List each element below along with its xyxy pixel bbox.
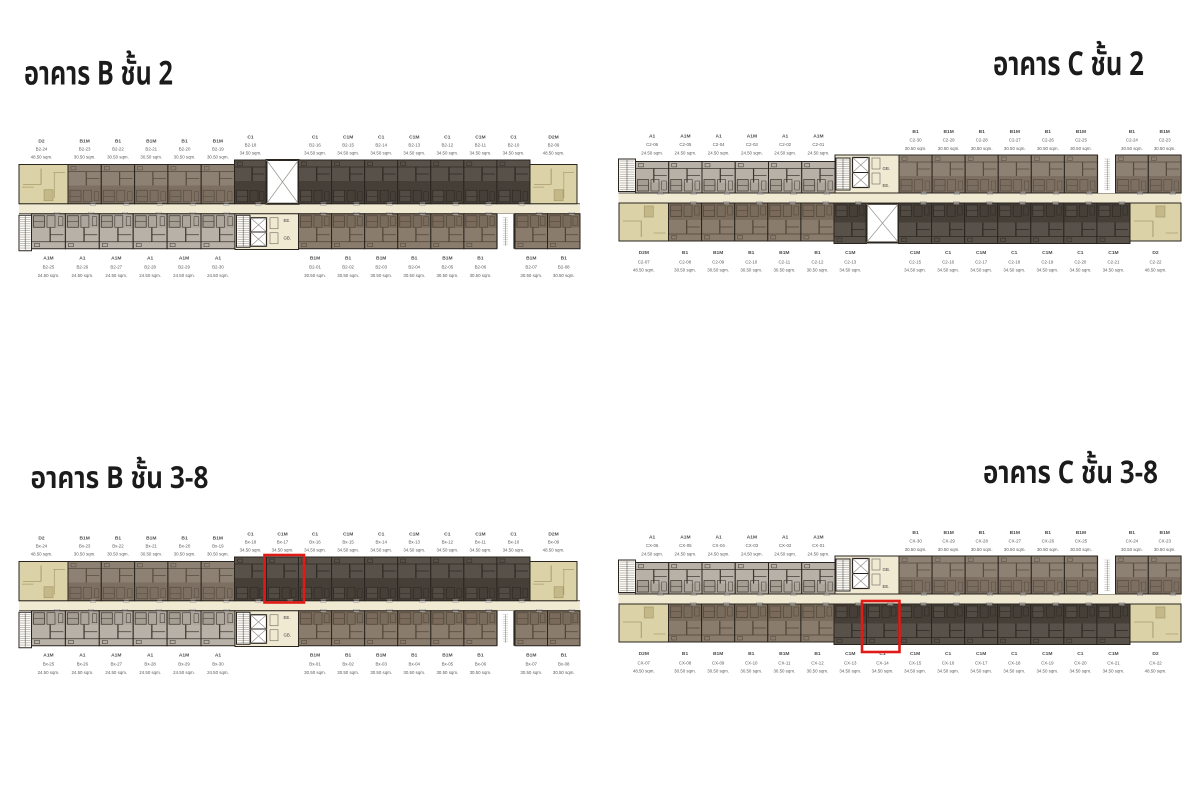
svg-text:C1: C1 bbox=[247, 531, 254, 537]
svg-text:B1: B1 bbox=[345, 255, 352, 261]
svg-text:CX-20: CX-20 bbox=[1074, 660, 1087, 665]
svg-text:CX-25: CX-25 bbox=[1075, 538, 1088, 543]
svg-text:48.50 sqm.: 48.50 sqm. bbox=[633, 268, 655, 273]
svg-text:B1M: B1M bbox=[526, 652, 536, 658]
svg-text:Bx-23: Bx-23 bbox=[79, 544, 91, 549]
svg-text:34.50 sqm.: 34.50 sqm. bbox=[872, 669, 894, 674]
svg-text:GB.: GB. bbox=[284, 632, 292, 637]
svg-text:48.50 sqm.: 48.50 sqm. bbox=[1145, 669, 1167, 674]
svg-text:30.50 sqm.: 30.50 sqm. bbox=[938, 146, 960, 151]
svg-text:B2-19: B2-19 bbox=[212, 147, 224, 152]
svg-text:30.50 sqm.: 30.50 sqm. bbox=[1121, 547, 1143, 552]
svg-text:C2-21: C2-21 bbox=[1107, 259, 1120, 264]
svg-text:A1: A1 bbox=[215, 652, 222, 658]
svg-text:B2-24: B2-24 bbox=[36, 147, 48, 152]
svg-text:C1: C1 bbox=[945, 651, 952, 657]
svg-text:Bx-05: Bx-05 bbox=[442, 662, 454, 667]
svg-text:C2-13: C2-13 bbox=[844, 259, 857, 264]
svg-text:30.50 sqm.: 30.50 sqm. bbox=[74, 154, 96, 159]
svg-text:CX-18: CX-18 bbox=[1008, 660, 1021, 665]
svg-text:B1M: B1M bbox=[1010, 129, 1020, 135]
svg-text:C1M: C1M bbox=[845, 250, 855, 256]
svg-text:48.50 sqm.: 48.50 sqm. bbox=[543, 547, 565, 552]
svg-text:B1: B1 bbox=[682, 250, 689, 256]
svg-text:34.50 sqm.: 34.50 sqm. bbox=[240, 547, 262, 552]
svg-text:C2-07: C2-07 bbox=[638, 259, 651, 264]
svg-text:30.50 sqm.: 30.50 sqm. bbox=[520, 273, 542, 278]
svg-text:B1: B1 bbox=[115, 535, 122, 541]
svg-text:30.50 sqm.: 30.50 sqm. bbox=[370, 670, 392, 675]
svg-text:30.50 sqm.: 30.50 sqm. bbox=[1004, 547, 1026, 552]
svg-text:B1M: B1M bbox=[146, 535, 156, 541]
svg-text:D2M: D2M bbox=[639, 250, 649, 256]
svg-text:30.50 sqm.: 30.50 sqm. bbox=[470, 670, 492, 675]
svg-text:CX-24: CX-24 bbox=[1126, 538, 1139, 543]
svg-text:C1: C1 bbox=[510, 531, 517, 537]
svg-text:B1M: B1M bbox=[442, 652, 452, 658]
svg-text:B1M: B1M bbox=[146, 138, 156, 144]
svg-text:B1M: B1M bbox=[79, 535, 89, 541]
svg-text:34.50 sqm.: 34.50 sqm. bbox=[1070, 268, 1092, 273]
svg-text:A1M: A1M bbox=[747, 534, 757, 540]
svg-text:B1: B1 bbox=[561, 255, 568, 261]
svg-text:B1: B1 bbox=[411, 255, 418, 261]
svg-text:C1M: C1M bbox=[976, 250, 986, 256]
svg-text:34.50 sqm.: 34.50 sqm. bbox=[470, 150, 492, 155]
svg-text:C1: C1 bbox=[1011, 250, 1018, 256]
svg-text:Bx-22: Bx-22 bbox=[112, 544, 124, 549]
svg-text:B1M: B1M bbox=[213, 535, 223, 541]
svg-text:24.50 sqm.: 24.50 sqm. bbox=[774, 552, 796, 557]
svg-text:C1M: C1M bbox=[1108, 250, 1118, 256]
svg-text:B2-04: B2-04 bbox=[408, 265, 420, 270]
svg-text:Bx-24: Bx-24 bbox=[36, 544, 48, 549]
svg-text:GB.: GB. bbox=[883, 166, 891, 171]
svg-text:C2-04: C2-04 bbox=[713, 142, 726, 147]
svg-text:C2-19: C2-19 bbox=[1041, 259, 1054, 264]
svg-text:B1: B1 bbox=[181, 138, 188, 144]
svg-text:34.50 sqm.: 34.50 sqm. bbox=[839, 669, 861, 674]
svg-text:30.50 sqm.: 30.50 sqm. bbox=[674, 669, 696, 674]
svg-text:30.50 sqm.: 30.50 sqm. bbox=[1037, 146, 1059, 151]
svg-text:34.50 sqm.: 34.50 sqm. bbox=[470, 547, 492, 552]
svg-text:D2: D2 bbox=[38, 138, 45, 144]
svg-text:B2-16: B2-16 bbox=[309, 143, 321, 148]
svg-text:30.50 sqm.: 30.50 sqm. bbox=[107, 551, 129, 556]
svg-text:C2-26: C2-26 bbox=[1042, 137, 1055, 142]
svg-text:30.50 sqm.: 30.50 sqm. bbox=[674, 268, 696, 273]
svg-text:CX-22: CX-22 bbox=[1149, 660, 1162, 665]
svg-text:A1M: A1M bbox=[179, 255, 189, 261]
svg-text:Bx-20: Bx-20 bbox=[179, 544, 191, 549]
svg-text:C2-24: C2-24 bbox=[1126, 137, 1139, 142]
svg-text:30.50 sqm.: 30.50 sqm. bbox=[707, 268, 729, 273]
svg-text:A1M: A1M bbox=[111, 652, 121, 658]
svg-text:C1M: C1M bbox=[845, 651, 855, 657]
svg-text:34.50 sqm.: 34.50 sqm. bbox=[970, 268, 992, 273]
svg-text:CX-19: CX-19 bbox=[1041, 660, 1054, 665]
svg-text:B2-28: B2-28 bbox=[144, 265, 156, 270]
svg-text:34.50 sqm.: 34.50 sqm. bbox=[904, 669, 926, 674]
svg-text:CX-29: CX-29 bbox=[942, 538, 955, 543]
svg-text:B1: B1 bbox=[682, 651, 689, 657]
svg-text:B1M: B1M bbox=[779, 250, 789, 256]
svg-text:B1M: B1M bbox=[213, 138, 223, 144]
svg-text:30.50 sqm.: 30.50 sqm. bbox=[773, 268, 795, 273]
svg-text:C1M: C1M bbox=[1108, 651, 1118, 657]
svg-text:B1M: B1M bbox=[310, 255, 320, 261]
svg-text:B1: B1 bbox=[181, 535, 188, 541]
svg-text:CX-16: CX-16 bbox=[942, 660, 955, 665]
svg-text:34.50 sqm.: 34.50 sqm. bbox=[839, 268, 861, 273]
svg-text:C1: C1 bbox=[312, 531, 319, 537]
svg-text:Bx-09: Bx-09 bbox=[548, 540, 560, 545]
svg-text:CX-26: CX-26 bbox=[1042, 538, 1055, 543]
svg-text:B2-11: B2-11 bbox=[475, 143, 487, 148]
svg-text:A1: A1 bbox=[147, 652, 154, 658]
svg-text:B1M: B1M bbox=[1076, 530, 1086, 536]
svg-text:CX-09: CX-09 bbox=[712, 660, 725, 665]
svg-text:B2-09: B2-09 bbox=[548, 143, 560, 148]
svg-text:24.50 sqm.: 24.50 sqm. bbox=[71, 273, 93, 278]
svg-text:C2-05: C2-05 bbox=[679, 142, 692, 147]
svg-text:30.50 sqm.: 30.50 sqm. bbox=[905, 547, 927, 552]
svg-text:B2-30: B2-30 bbox=[212, 265, 224, 270]
svg-text:C2-03: C2-03 bbox=[746, 142, 759, 147]
svg-text:C2-18: C2-18 bbox=[1008, 259, 1021, 264]
svg-text:34.50 sqm.: 34.50 sqm. bbox=[1003, 268, 1025, 273]
svg-text:30.50 sqm.: 30.50 sqm. bbox=[207, 154, 229, 159]
svg-text:C2-09: C2-09 bbox=[712, 259, 725, 264]
svg-text:Bx-26: Bx-26 bbox=[77, 662, 89, 667]
svg-text:Bx-19: Bx-19 bbox=[212, 544, 224, 549]
svg-text:30.50 sqm.: 30.50 sqm. bbox=[1037, 547, 1059, 552]
svg-text:24.50 sqm.: 24.50 sqm. bbox=[173, 273, 195, 278]
svg-text:A1: A1 bbox=[782, 534, 789, 540]
svg-text:C2-23: C2-23 bbox=[1159, 137, 1172, 142]
svg-text:34.50 sqm.: 34.50 sqm. bbox=[503, 150, 525, 155]
svg-text:30.50 sqm.: 30.50 sqm. bbox=[107, 154, 129, 159]
svg-text:Bx-08: Bx-08 bbox=[558, 662, 570, 667]
svg-text:34.50 sqm.: 34.50 sqm. bbox=[937, 669, 959, 674]
svg-text:34.50 sqm.: 34.50 sqm. bbox=[1070, 669, 1092, 674]
svg-text:24.50 sqm.: 24.50 sqm. bbox=[675, 151, 697, 156]
svg-text:GB.: GB. bbox=[284, 235, 292, 240]
svg-text:34.50 sqm.: 34.50 sqm. bbox=[503, 547, 525, 552]
svg-text:B2-18: B2-18 bbox=[245, 143, 257, 148]
svg-text:Bx-27: Bx-27 bbox=[111, 662, 123, 667]
svg-text:B1: B1 bbox=[1129, 530, 1136, 536]
svg-text:B1M: B1M bbox=[779, 651, 789, 657]
svg-text:B1: B1 bbox=[979, 129, 986, 135]
svg-text:A1M: A1M bbox=[111, 255, 121, 261]
svg-text:48.50 sqm.: 48.50 sqm. bbox=[543, 150, 565, 155]
svg-text:D2M: D2M bbox=[548, 134, 558, 140]
svg-text:48.50 sqm.: 48.50 sqm. bbox=[633, 669, 655, 674]
svg-text:30.50 sqm.: 30.50 sqm. bbox=[740, 669, 762, 674]
svg-text:A1M: A1M bbox=[179, 652, 189, 658]
svg-text:C2-16: C2-16 bbox=[942, 259, 955, 264]
svg-text:24.50 sqm.: 24.50 sqm. bbox=[774, 151, 796, 156]
svg-text:B1M: B1M bbox=[1010, 530, 1020, 536]
svg-text:C1M: C1M bbox=[1042, 651, 1052, 657]
svg-text:30.50 sqm.: 30.50 sqm. bbox=[807, 669, 829, 674]
svg-text:B2-12: B2-12 bbox=[441, 143, 453, 148]
svg-text:C1: C1 bbox=[1077, 651, 1084, 657]
svg-text:30.50 sqm.: 30.50 sqm. bbox=[1004, 146, 1026, 151]
svg-text:B2-05: B2-05 bbox=[442, 265, 454, 270]
svg-text:C1M: C1M bbox=[1042, 250, 1052, 256]
svg-text:24.50 sqm.: 24.50 sqm. bbox=[641, 552, 663, 557]
svg-text:C2-08: C2-08 bbox=[679, 259, 692, 264]
svg-text:30.50 sqm.: 30.50 sqm. bbox=[174, 154, 196, 159]
svg-text:EE.: EE. bbox=[883, 183, 890, 188]
svg-text:CX-03: CX-03 bbox=[746, 543, 759, 548]
svg-text:B2-22: B2-22 bbox=[112, 147, 124, 152]
svg-text:Bx-13: Bx-13 bbox=[409, 540, 421, 545]
svg-text:CX-17: CX-17 bbox=[975, 660, 988, 665]
svg-text:B2-21: B2-21 bbox=[145, 147, 157, 152]
svg-text:34.50 sqm.: 34.50 sqm. bbox=[370, 547, 392, 552]
svg-text:GB.: GB. bbox=[883, 567, 891, 572]
svg-text:34.50 sqm.: 34.50 sqm. bbox=[272, 547, 294, 552]
svg-text:24.50 sqm.: 24.50 sqm. bbox=[741, 552, 763, 557]
svg-text:Bx-10: Bx-10 bbox=[508, 540, 520, 545]
svg-text:24.50 sqm.: 24.50 sqm. bbox=[38, 670, 60, 675]
svg-text:34.50 sqm.: 34.50 sqm. bbox=[1003, 669, 1025, 674]
svg-text:C1: C1 bbox=[444, 134, 451, 140]
svg-text:A1: A1 bbox=[715, 133, 722, 139]
svg-text:B1M: B1M bbox=[1160, 129, 1170, 135]
svg-text:30.50 sqm.: 30.50 sqm. bbox=[140, 154, 162, 159]
svg-text:C1: C1 bbox=[312, 134, 319, 140]
svg-text:C1M: C1M bbox=[409, 134, 419, 140]
svg-text:A1: A1 bbox=[782, 133, 789, 139]
svg-text:34.50 sqm.: 34.50 sqm. bbox=[1103, 669, 1125, 674]
svg-text:C2-15: C2-15 bbox=[909, 259, 922, 264]
svg-text:D2: D2 bbox=[1152, 651, 1159, 657]
svg-text:B1: B1 bbox=[748, 651, 755, 657]
svg-text:30.50 sqm.: 30.50 sqm. bbox=[74, 551, 96, 556]
svg-text:B1M: B1M bbox=[376, 255, 386, 261]
svg-text:C1M: C1M bbox=[409, 531, 419, 537]
svg-text:C2-12: C2-12 bbox=[811, 259, 824, 264]
svg-text:B1M: B1M bbox=[442, 255, 452, 261]
svg-text:CX-13: CX-13 bbox=[844, 660, 857, 665]
svg-text:30.50 sqm.: 30.50 sqm. bbox=[174, 551, 196, 556]
svg-text:Bx-15: Bx-15 bbox=[342, 540, 354, 545]
svg-text:Bx-04: Bx-04 bbox=[409, 662, 421, 667]
svg-text:B1: B1 bbox=[814, 250, 821, 256]
svg-text:34.50 sqm.: 34.50 sqm. bbox=[370, 150, 392, 155]
svg-text:Bx-21: Bx-21 bbox=[146, 544, 158, 549]
svg-text:C2-11: C2-11 bbox=[779, 259, 791, 264]
svg-text:34.50 sqm.: 34.50 sqm. bbox=[436, 150, 458, 155]
svg-text:30.50 sqm.: 30.50 sqm. bbox=[403, 273, 425, 278]
svg-text:CX-10: CX-10 bbox=[745, 660, 758, 665]
svg-text:34.50 sqm.: 34.50 sqm. bbox=[240, 150, 262, 155]
svg-text:B1M: B1M bbox=[310, 652, 320, 658]
svg-text:EE.: EE. bbox=[883, 584, 890, 589]
svg-text:B2-02: B2-02 bbox=[342, 265, 354, 270]
svg-text:30.50 sqm.: 30.50 sqm. bbox=[807, 268, 829, 273]
svg-text:30.50 sqm.: 30.50 sqm. bbox=[971, 547, 993, 552]
svg-text:B2-27: B2-27 bbox=[110, 265, 122, 270]
svg-text:24.50 sqm.: 24.50 sqm. bbox=[139, 273, 161, 278]
svg-text:A1: A1 bbox=[649, 534, 656, 540]
svg-text:A1: A1 bbox=[649, 133, 656, 139]
svg-text:34.50 sqm.: 34.50 sqm. bbox=[970, 669, 992, 674]
svg-text:B1: B1 bbox=[477, 255, 484, 261]
svg-text:B2-23: B2-23 bbox=[79, 147, 91, 152]
svg-text:24.50 sqm.: 24.50 sqm. bbox=[38, 273, 60, 278]
svg-text:Bx-01: Bx-01 bbox=[309, 662, 321, 667]
svg-text:24.50 sqm.: 24.50 sqm. bbox=[641, 151, 663, 156]
svg-text:30.50 sqm.: 30.50 sqm. bbox=[520, 670, 542, 675]
svg-text:C1: C1 bbox=[1011, 651, 1018, 657]
svg-text:B1: B1 bbox=[979, 530, 986, 536]
svg-text:B1: B1 bbox=[115, 138, 122, 144]
svg-text:D2M: D2M bbox=[548, 531, 558, 537]
svg-text:CX-06: CX-06 bbox=[646, 543, 659, 548]
svg-text:30.50 sqm.: 30.50 sqm. bbox=[1154, 547, 1176, 552]
svg-text:C2-02: C2-02 bbox=[779, 142, 792, 147]
svg-text:CX-28: CX-28 bbox=[975, 538, 988, 543]
svg-text:C1: C1 bbox=[510, 134, 517, 140]
svg-text:C1M: C1M bbox=[475, 134, 485, 140]
svg-text:C2-17: C2-17 bbox=[975, 259, 988, 264]
svg-text:EE.: EE. bbox=[284, 218, 291, 223]
svg-text:B1M: B1M bbox=[713, 250, 723, 256]
svg-text:30.50 sqm.: 30.50 sqm. bbox=[1070, 146, 1092, 151]
svg-text:B1M: B1M bbox=[376, 652, 386, 658]
svg-text:48.50 sqm.: 48.50 sqm. bbox=[1145, 268, 1167, 273]
svg-text:30.50 sqm.: 30.50 sqm. bbox=[740, 268, 762, 273]
svg-text:C1M: C1M bbox=[475, 531, 485, 537]
svg-text:24.50 sqm.: 24.50 sqm. bbox=[71, 670, 93, 675]
svg-text:C1: C1 bbox=[444, 531, 451, 537]
svg-text:34.50 sqm.: 34.50 sqm. bbox=[436, 547, 458, 552]
svg-text:C2-27: C2-27 bbox=[1009, 137, 1022, 142]
svg-text:CX-21: CX-21 bbox=[1107, 660, 1120, 665]
svg-text:30.50 sqm.: 30.50 sqm. bbox=[470, 273, 492, 278]
svg-text:C1M: C1M bbox=[910, 651, 920, 657]
svg-text:B1: B1 bbox=[912, 129, 919, 135]
svg-text:C1M: C1M bbox=[343, 134, 353, 140]
svg-text:B1M: B1M bbox=[1160, 530, 1170, 536]
svg-text:C2-29: C2-29 bbox=[943, 137, 956, 142]
svg-text:B2-25: B2-25 bbox=[43, 265, 55, 270]
svg-text:34.50 sqm.: 34.50 sqm. bbox=[1036, 669, 1058, 674]
svg-text:B1: B1 bbox=[477, 652, 484, 658]
svg-text:CX-11: CX-11 bbox=[778, 660, 791, 665]
svg-text:C2-30: C2-30 bbox=[910, 137, 923, 142]
svg-text:Bx-17: Bx-17 bbox=[277, 540, 289, 545]
svg-text:B1: B1 bbox=[561, 652, 568, 658]
svg-text:CX-01: CX-01 bbox=[812, 543, 825, 548]
svg-text:D2: D2 bbox=[1152, 250, 1159, 256]
svg-text:C2-22: C2-22 bbox=[1150, 259, 1163, 264]
svg-text:B1: B1 bbox=[1129, 129, 1136, 135]
svg-text:24.50 sqm.: 24.50 sqm. bbox=[105, 670, 127, 675]
svg-text:Bx-29: Bx-29 bbox=[178, 662, 190, 667]
svg-text:Bx-12: Bx-12 bbox=[442, 540, 454, 545]
svg-text:30.50 sqm.: 30.50 sqm. bbox=[436, 273, 458, 278]
svg-text:Bx-30: Bx-30 bbox=[212, 662, 224, 667]
svg-text:EE.: EE. bbox=[284, 615, 291, 620]
svg-text:C1: C1 bbox=[247, 134, 254, 140]
svg-text:B2-06: B2-06 bbox=[475, 265, 487, 270]
svg-text:34.50 sqm.: 34.50 sqm. bbox=[937, 268, 959, 273]
svg-text:Bx-18: Bx-18 bbox=[245, 540, 257, 545]
svg-text:34.50 sqm.: 34.50 sqm. bbox=[1103, 268, 1125, 273]
svg-text:30.50 sqm.: 30.50 sqm. bbox=[403, 670, 425, 675]
svg-text:C1M: C1M bbox=[277, 531, 287, 537]
svg-text:B2-03: B2-03 bbox=[375, 265, 387, 270]
svg-text:CX-30: CX-30 bbox=[909, 538, 922, 543]
svg-text:B2-08: B2-08 bbox=[558, 265, 570, 270]
svg-text:B1: B1 bbox=[912, 530, 919, 536]
svg-text:24.50 sqm.: 24.50 sqm. bbox=[741, 151, 763, 156]
svg-text:B2-20: B2-20 bbox=[179, 147, 191, 152]
svg-text:A1: A1 bbox=[79, 255, 86, 261]
svg-text:24.50 sqm.: 24.50 sqm. bbox=[675, 552, 697, 557]
svg-text:30.50 sqm.: 30.50 sqm. bbox=[207, 551, 229, 556]
svg-text:C2-01: C2-01 bbox=[812, 142, 825, 147]
svg-text:Bx-14: Bx-14 bbox=[375, 540, 387, 545]
svg-text:A1M: A1M bbox=[680, 534, 690, 540]
svg-text:Bx-02: Bx-02 bbox=[342, 662, 354, 667]
svg-text:24.50 sqm.: 24.50 sqm. bbox=[139, 670, 161, 675]
svg-text:34.50 sqm.: 34.50 sqm. bbox=[304, 547, 326, 552]
svg-text:A1M: A1M bbox=[813, 534, 823, 540]
svg-text:A1: A1 bbox=[215, 255, 222, 261]
svg-text:B2-10: B2-10 bbox=[508, 143, 520, 148]
svg-text:34.50 sqm.: 34.50 sqm. bbox=[904, 268, 926, 273]
svg-text:B1: B1 bbox=[411, 652, 418, 658]
svg-text:B1M: B1M bbox=[526, 255, 536, 261]
svg-text:30.50 sqm.: 30.50 sqm. bbox=[140, 551, 162, 556]
svg-text:C1: C1 bbox=[1077, 250, 1084, 256]
svg-text:24.50 sqm.: 24.50 sqm. bbox=[708, 552, 730, 557]
svg-text:B1M: B1M bbox=[79, 138, 89, 144]
svg-text:B2-01: B2-01 bbox=[309, 265, 321, 270]
svg-text:34.50 sqm.: 34.50 sqm. bbox=[403, 547, 425, 552]
svg-text:CX-12: CX-12 bbox=[811, 660, 824, 665]
svg-text:C1M: C1M bbox=[976, 651, 986, 657]
svg-text:CX-14: CX-14 bbox=[876, 660, 889, 665]
svg-text:30.50 sqm.: 30.50 sqm. bbox=[1070, 547, 1092, 552]
svg-text:34.50 sqm.: 34.50 sqm. bbox=[1036, 268, 1058, 273]
svg-text:Bx-25: Bx-25 bbox=[43, 662, 55, 667]
svg-text:B2-13: B2-13 bbox=[408, 143, 420, 148]
svg-text:34.50 sqm.: 34.50 sqm. bbox=[304, 150, 326, 155]
svg-text:CX-15: CX-15 bbox=[909, 660, 922, 665]
svg-text:A1: A1 bbox=[79, 652, 86, 658]
svg-text:C2-25: C2-25 bbox=[1075, 137, 1088, 142]
svg-text:CX-27: CX-27 bbox=[1009, 538, 1022, 543]
svg-text:30.50 sqm.: 30.50 sqm. bbox=[707, 669, 729, 674]
svg-text:B1: B1 bbox=[1045, 129, 1052, 135]
svg-text:B1M: B1M bbox=[713, 651, 723, 657]
svg-text:C1: C1 bbox=[378, 531, 385, 537]
svg-text:D2M: D2M bbox=[639, 651, 649, 657]
svg-text:B2-07: B2-07 bbox=[525, 265, 537, 270]
svg-text:A1M: A1M bbox=[43, 652, 53, 658]
svg-text:C2-06: C2-06 bbox=[646, 142, 659, 147]
svg-text:30.50 sqm.: 30.50 sqm. bbox=[436, 670, 458, 675]
svg-text:30.50 sqm.: 30.50 sqm. bbox=[773, 669, 795, 674]
